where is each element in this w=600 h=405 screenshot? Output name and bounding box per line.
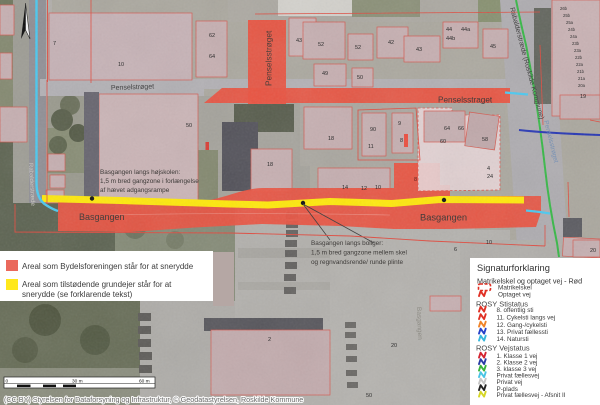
svg-text:12. Gang-/cykelsti: 12. Gang-/cykelsti bbox=[497, 322, 547, 329]
svg-text:30 m: 30 m bbox=[72, 379, 83, 385]
svg-text:(CC BY) Styrelsen for Datafors: (CC BY) Styrelsen for Dataforsyning og I… bbox=[4, 395, 303, 404]
svg-text:ROSY Vejstatus: ROSY Vejstatus bbox=[476, 344, 530, 353]
svg-text:14. Natursti: 14. Natursti bbox=[497, 336, 529, 343]
svg-text:60 m: 60 m bbox=[139, 379, 150, 385]
svg-text:Optaget vej: Optaget vej bbox=[498, 292, 531, 299]
svg-text:0: 0 bbox=[6, 379, 9, 385]
svg-text:13. Privat fællessti: 13. Privat fællessti bbox=[497, 329, 548, 336]
svg-text:11. Cykelsti langs vej: 11. Cykelsti langs vej bbox=[497, 315, 556, 322]
svg-text:Areal som tilstødende grundeje: Areal som tilstødende grundejer står for… bbox=[22, 280, 172, 289]
svg-text:Privat vej: Privat vej bbox=[497, 379, 523, 386]
svg-text:8. offentlig sti: 8. offentlig sti bbox=[497, 307, 534, 314]
svg-text:Areal som Bydelsforeningen stå: Areal som Bydelsforeningen står for at s… bbox=[22, 262, 194, 271]
svg-text:Privat fællesvej - Afsnit II: Privat fællesvej - Afsnit II bbox=[497, 392, 566, 399]
svg-text:Matrikelskel: Matrikelskel bbox=[498, 285, 532, 292]
svg-text:snerydde (se forklarende tekst: snerydde (se forklarende tekst) bbox=[22, 290, 133, 299]
svg-text:Signaturforklaring: Signaturforklaring bbox=[477, 263, 550, 273]
